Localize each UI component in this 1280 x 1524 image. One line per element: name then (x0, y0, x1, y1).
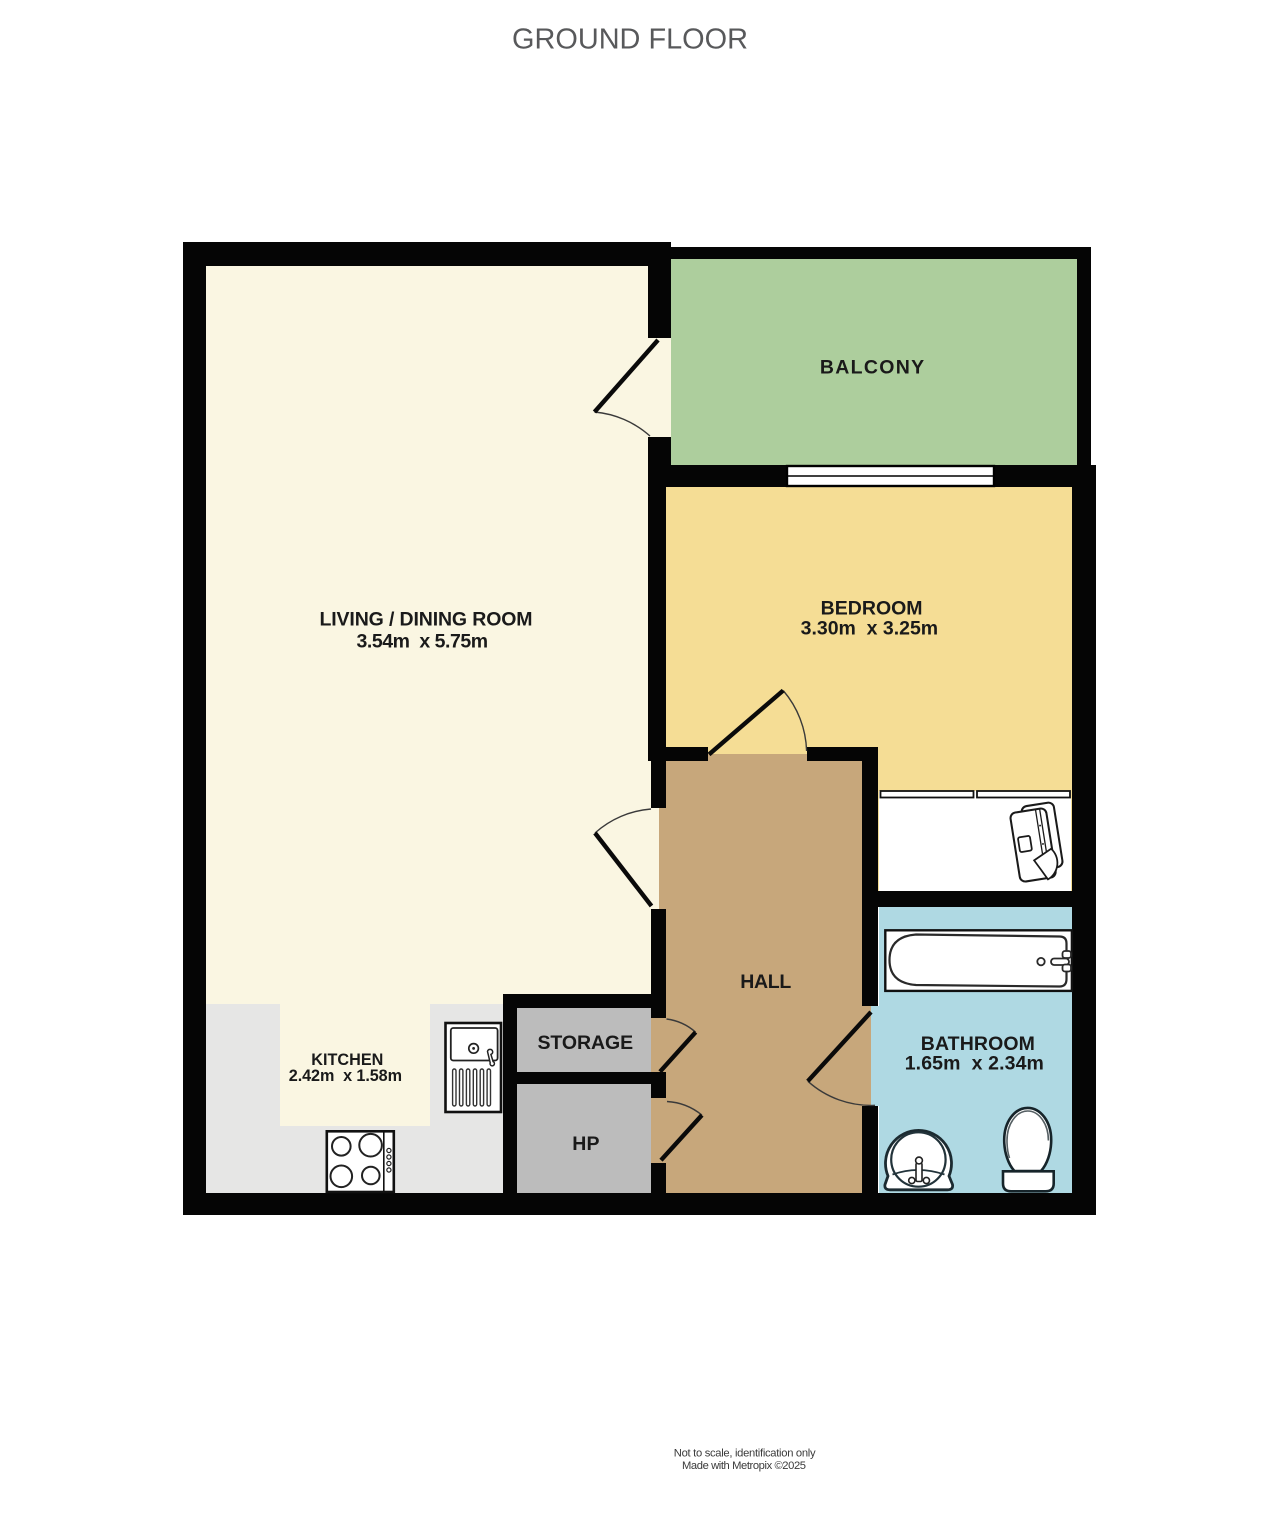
svg-text:GROUND FLOOR: GROUND FLOOR (512, 24, 748, 56)
svg-text:HALL: HALL (740, 971, 791, 993)
svg-text:STORAGE: STORAGE (537, 1032, 633, 1054)
svg-text:3.30m x 3.25m: 3.30m x 3.25m (801, 618, 939, 640)
svg-text:LIVING / DINING ROOM: LIVING / DINING ROOM (320, 609, 533, 631)
svg-text:1.65m x 2.34m: 1.65m x 2.34m (905, 1053, 1044, 1075)
svg-text:BEDROOM: BEDROOM (821, 598, 923, 620)
svg-text:3.54m x 5.75m: 3.54m x 5.75m (357, 631, 489, 653)
svg-text:BALCONY: BALCONY (820, 357, 924, 379)
svg-text:Not to scale, identification o: Not to scale, identification only (674, 1448, 816, 1460)
svg-text:HP: HP (572, 1133, 599, 1155)
svg-text:Made with Metropix ©2025: Made with Metropix ©2025 (682, 1460, 806, 1472)
svg-text:2.42m x 1.58m: 2.42m x 1.58m (289, 1067, 402, 1085)
